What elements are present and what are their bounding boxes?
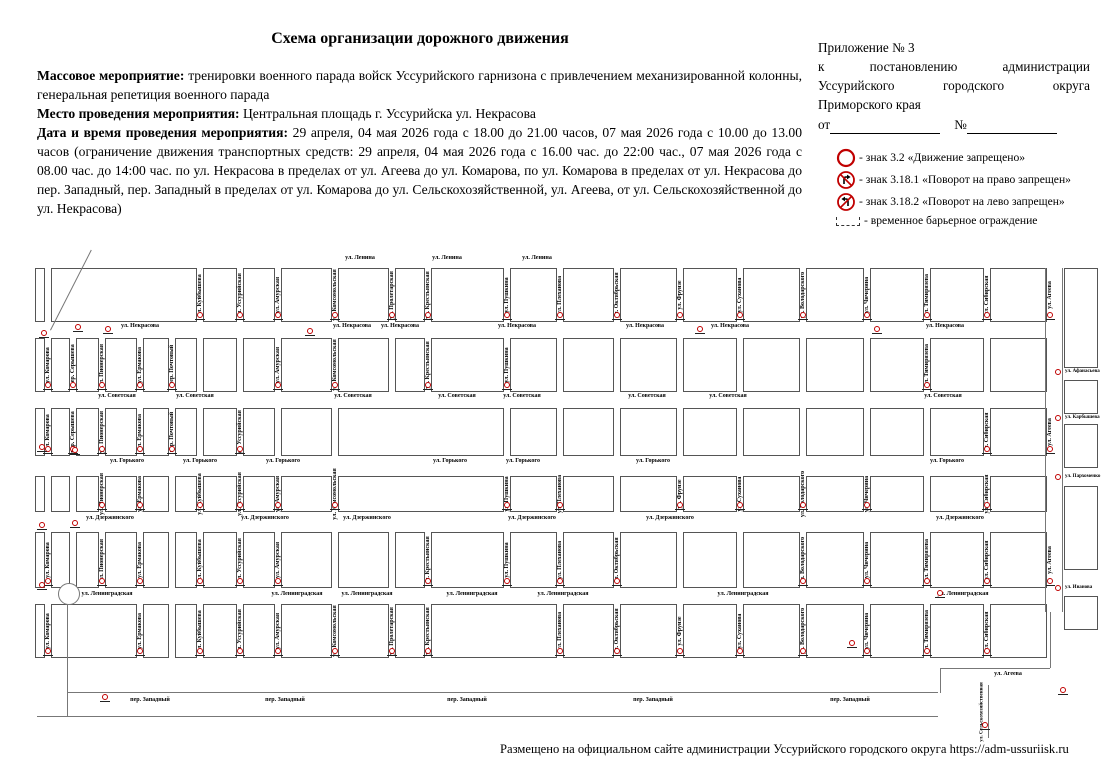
city-block bbox=[563, 604, 614, 658]
barrier-mark bbox=[68, 389, 78, 390]
street-label-vertical: ул. Комсомольская bbox=[332, 468, 338, 520]
no-entry-sign bbox=[737, 648, 743, 654]
no-entry-sign bbox=[237, 446, 243, 452]
street-label-vertical: ул. Крестьянская bbox=[425, 536, 431, 583]
no-entry-sign bbox=[737, 312, 743, 318]
street-label-horizontal: ул. Советская bbox=[628, 393, 666, 399]
city-block bbox=[35, 476, 45, 512]
barrier-mark bbox=[675, 655, 685, 656]
street-line bbox=[67, 600, 68, 716]
street-label-vertical: ул. Уссурийская bbox=[237, 273, 243, 317]
no-entry-sign bbox=[72, 520, 78, 526]
barrier-mark bbox=[39, 337, 49, 338]
barrier-mark bbox=[97, 389, 107, 390]
city-block bbox=[51, 338, 70, 392]
no-entry-sign bbox=[984, 502, 990, 508]
city-block bbox=[143, 476, 169, 512]
city-block bbox=[930, 604, 984, 658]
city-block bbox=[990, 268, 1047, 322]
city-block bbox=[175, 476, 197, 512]
no-entry-sign bbox=[864, 312, 870, 318]
barrier-mark bbox=[612, 655, 622, 656]
no-entry-sign bbox=[39, 582, 45, 588]
street-label-vertical: ул. Ермакова bbox=[137, 613, 143, 649]
city-block bbox=[431, 604, 557, 658]
no-entry-sign bbox=[237, 502, 243, 508]
city-block bbox=[683, 408, 737, 456]
barrier-mark bbox=[922, 389, 932, 390]
street-label-horizontal: ул. Ленинградская bbox=[717, 591, 768, 597]
no-entry-sign bbox=[937, 590, 943, 596]
city-block bbox=[51, 408, 70, 456]
street-label-free: ул. Сельскохозяйственная bbox=[980, 682, 985, 741]
no-entry-sign bbox=[924, 312, 930, 318]
street-label-vertical: ул. Пионерская bbox=[99, 539, 105, 581]
barrier-mark bbox=[135, 655, 145, 656]
barrier-mark bbox=[135, 585, 145, 586]
barrier-mark bbox=[872, 333, 882, 334]
street-label-horizontal: ул. Некрасова bbox=[711, 323, 749, 329]
city-block bbox=[143, 408, 169, 456]
city-block bbox=[806, 476, 864, 512]
city-block bbox=[76, 338, 99, 392]
no-entry-sign bbox=[237, 648, 243, 654]
street-label-vertical: ул. Тимирязева bbox=[924, 539, 930, 581]
street-label-horizontal: ул. Некрасова bbox=[626, 323, 664, 329]
barrier-mark bbox=[982, 319, 992, 320]
city-block bbox=[395, 268, 425, 322]
city-block bbox=[1064, 424, 1098, 468]
street-label-vertical: ул. Сибирская bbox=[984, 611, 990, 650]
barrier-mark bbox=[862, 655, 872, 656]
street-label-horizontal: ул. Ленина bbox=[432, 255, 462, 261]
no-entry-sign bbox=[332, 312, 338, 318]
city-block bbox=[806, 338, 864, 392]
street-label-horizontal: ул. Дзержинского bbox=[646, 515, 694, 521]
no-entry-sign bbox=[72, 447, 78, 453]
street-label-horizontal: ул. Горького bbox=[183, 458, 217, 464]
no-entry-sign bbox=[45, 578, 51, 584]
city-block bbox=[203, 338, 237, 392]
city-block bbox=[683, 604, 737, 658]
street-label-horizontal: ул. Некрасова bbox=[926, 323, 964, 329]
street-label-horizontal: ул. Ленинградская bbox=[271, 591, 322, 597]
street-label-vertical: ул. Комарова bbox=[45, 414, 51, 450]
street-label-horizontal: пер. Западный bbox=[447, 697, 487, 703]
no-entry-sign bbox=[425, 578, 431, 584]
no-entry-sign bbox=[169, 446, 175, 452]
no-entry-sign bbox=[99, 578, 105, 584]
city-block bbox=[806, 408, 864, 456]
city-block bbox=[76, 532, 99, 588]
no-entry-sign bbox=[332, 648, 338, 654]
no-entry-sign bbox=[1055, 585, 1061, 591]
street-label-horizontal: ул. Советская bbox=[334, 393, 372, 399]
city-block bbox=[35, 268, 45, 322]
barrier-mark bbox=[862, 319, 872, 320]
barrier-mark bbox=[612, 319, 622, 320]
street-label-vertical: ул. Пушкина bbox=[504, 277, 510, 312]
city-block bbox=[743, 268, 800, 322]
city-block bbox=[281, 268, 332, 322]
city-block bbox=[563, 338, 614, 392]
city-block bbox=[683, 268, 737, 322]
city-block bbox=[175, 532, 197, 588]
street-label-vertical: ул. Комарова bbox=[45, 613, 51, 649]
barrier-mark bbox=[43, 389, 53, 390]
no-entry-sign bbox=[45, 382, 51, 388]
no-entry-sign bbox=[677, 648, 683, 654]
city-block bbox=[35, 604, 45, 658]
city-block bbox=[143, 338, 169, 392]
street-label-horizontal: ул. Афанасьева bbox=[1065, 369, 1100, 374]
street-label-vertical: ул. Амурская bbox=[275, 542, 281, 578]
barrier-mark bbox=[502, 389, 512, 390]
street-label-horizontal: ул. Горького bbox=[266, 458, 300, 464]
no-entry-sign bbox=[99, 382, 105, 388]
barrier-mark bbox=[935, 597, 945, 598]
no-entry-sign bbox=[1047, 578, 1053, 584]
street-label-vertical: ул. Тимирязева bbox=[924, 274, 930, 316]
no-entry-sign bbox=[800, 312, 806, 318]
street-label-vertical: ул. Тимирязева bbox=[924, 344, 930, 386]
street-label-horizontal: ул. Ленинградская bbox=[81, 591, 132, 597]
street-line bbox=[1045, 268, 1046, 612]
barrier-mark bbox=[555, 319, 565, 320]
street-label-horizontal: ул. Горького bbox=[110, 458, 144, 464]
no-entry-sign bbox=[307, 328, 313, 334]
street-label-vertical: ул. Пушкина bbox=[504, 347, 510, 382]
no-entry-sign bbox=[99, 502, 105, 508]
barrier-mark bbox=[612, 585, 622, 586]
street-label-vertical: ул. Амурская bbox=[275, 613, 281, 649]
city-block bbox=[395, 338, 425, 392]
street-label-vertical: ул. Ермакова bbox=[137, 542, 143, 578]
no-entry-sign bbox=[1055, 369, 1061, 375]
street-label-vertical: ул. Фрунзе bbox=[677, 616, 683, 645]
city-block bbox=[806, 268, 864, 322]
no-entry-sign bbox=[984, 578, 990, 584]
no-entry-sign bbox=[237, 578, 243, 584]
city-block bbox=[51, 476, 70, 512]
barrier-mark bbox=[235, 319, 245, 320]
barrier-mark bbox=[235, 655, 245, 656]
no-entry-sign bbox=[39, 444, 45, 450]
street-label-vertical: ул. Сибирская bbox=[984, 540, 990, 579]
no-entry-sign bbox=[864, 648, 870, 654]
city-block bbox=[620, 338, 677, 392]
street-label-vertical: ул. Октябрьская bbox=[614, 537, 620, 582]
street-label-vertical: ул. Чичерина bbox=[864, 277, 870, 313]
street-label-vertical: ул. Плеханова bbox=[557, 612, 563, 650]
street-label-horizontal: пер. Западный bbox=[130, 697, 170, 703]
footer-note: Размещено на официальном сайте администр… bbox=[500, 742, 1069, 757]
city-block bbox=[243, 268, 275, 322]
barrier-mark bbox=[982, 655, 992, 656]
city-block bbox=[870, 338, 924, 392]
street-label-vertical: ул. Агеева bbox=[1047, 418, 1053, 446]
street-label-horizontal: ул. Горького bbox=[636, 458, 670, 464]
barrier-mark bbox=[423, 655, 433, 656]
city-block bbox=[990, 476, 1047, 512]
city-block bbox=[930, 268, 984, 322]
city-block bbox=[243, 476, 275, 512]
street-label-vertical: ул. Агеева bbox=[1047, 281, 1053, 309]
no-entry-sign bbox=[504, 382, 510, 388]
city-block bbox=[743, 532, 800, 588]
no-entry-sign bbox=[984, 446, 990, 452]
city-block bbox=[743, 338, 800, 392]
no-entry-sign bbox=[557, 578, 563, 584]
city-block bbox=[683, 532, 737, 588]
no-entry-sign bbox=[982, 722, 988, 728]
barrier-mark bbox=[167, 389, 177, 390]
city-block bbox=[76, 408, 99, 456]
city-block bbox=[338, 408, 504, 456]
street-label-horizontal: ул. Ленинградская bbox=[341, 591, 392, 597]
street-label-vertical: ул. Фрунзе bbox=[677, 280, 683, 309]
barrier-mark bbox=[502, 585, 512, 586]
city-block bbox=[243, 408, 275, 456]
no-entry-sign bbox=[677, 312, 683, 318]
street-label-vertical: ул. Пушкина bbox=[504, 542, 510, 577]
barrier-mark bbox=[37, 451, 47, 452]
street-label-horizontal: ул. Ленина bbox=[345, 255, 375, 261]
street-label-horizontal: ул. Дзержинского bbox=[241, 515, 289, 521]
street-label-vertical: ул. Амурская bbox=[275, 347, 281, 383]
city-block bbox=[143, 532, 169, 588]
city-block bbox=[620, 268, 677, 322]
no-entry-sign bbox=[389, 648, 395, 654]
street-label-horizontal: ул. Ленинградская bbox=[937, 591, 988, 597]
barrier-mark bbox=[103, 333, 113, 334]
city-block bbox=[203, 408, 237, 456]
no-entry-sign bbox=[275, 312, 281, 318]
street-label-vertical: ул. Володарского bbox=[800, 537, 806, 583]
barrier-mark bbox=[735, 319, 745, 320]
barrier-mark bbox=[982, 509, 992, 510]
barrier-mark bbox=[97, 585, 107, 586]
no-entry-sign bbox=[169, 382, 175, 388]
city-block bbox=[510, 476, 557, 512]
barrier-mark bbox=[43, 655, 53, 656]
city-block bbox=[105, 476, 137, 512]
city-block bbox=[203, 532, 237, 588]
street-label-vertical: ул. Амурская bbox=[275, 277, 281, 313]
street-label-vertical: ул. Куйбышева bbox=[197, 539, 203, 581]
barrier-mark bbox=[195, 585, 205, 586]
no-entry-sign bbox=[614, 578, 620, 584]
no-entry-sign bbox=[504, 312, 510, 318]
barrier-mark bbox=[555, 655, 565, 656]
barrier-mark bbox=[735, 655, 745, 656]
barrier-mark bbox=[235, 453, 245, 454]
street-label-vertical: ул. Плеханова bbox=[557, 276, 563, 314]
no-entry-sign bbox=[197, 578, 203, 584]
street-label-vertical: ул. Тимирязева bbox=[924, 610, 930, 652]
street-label-horizontal: пер. Западный bbox=[830, 697, 870, 703]
barrier-mark bbox=[922, 585, 932, 586]
no-entry-sign bbox=[197, 312, 203, 318]
city-block bbox=[203, 604, 237, 658]
city-block bbox=[431, 338, 504, 392]
city-block bbox=[563, 532, 614, 588]
barrier-mark bbox=[43, 453, 53, 454]
city-block bbox=[35, 532, 45, 588]
city-block bbox=[395, 532, 425, 588]
street-label-horizontal: ул. Ленинградская bbox=[446, 591, 497, 597]
no-entry-sign bbox=[137, 502, 143, 508]
city-block bbox=[806, 604, 864, 658]
street-label-vertical: ул. Уссурийская bbox=[237, 609, 243, 653]
street-label-horizontal: ул. Дзержинского bbox=[343, 515, 391, 521]
barrier-mark bbox=[922, 655, 932, 656]
no-entry-sign bbox=[275, 382, 281, 388]
street-label-horizontal: ул. Ленинградская bbox=[537, 591, 588, 597]
barrier-mark bbox=[502, 509, 512, 510]
city-block bbox=[51, 604, 137, 658]
no-entry-sign bbox=[39, 522, 45, 528]
barrier-mark bbox=[97, 509, 107, 510]
street-label-horizontal: ул. Некрасова bbox=[121, 323, 159, 329]
city-block bbox=[620, 408, 677, 456]
city-block bbox=[870, 408, 924, 456]
no-entry-sign bbox=[504, 578, 510, 584]
city-block bbox=[870, 476, 924, 512]
city-block bbox=[620, 476, 677, 512]
street-line bbox=[1050, 612, 1051, 668]
city-block bbox=[338, 338, 389, 392]
city-block bbox=[175, 408, 197, 456]
no-entry-sign bbox=[75, 324, 81, 330]
barrier-mark bbox=[135, 453, 145, 454]
street-label-horizontal: ул. Некрасова bbox=[381, 323, 419, 329]
city-block bbox=[281, 476, 332, 512]
city-block bbox=[683, 476, 737, 512]
city-block bbox=[105, 532, 137, 588]
barrier-mark bbox=[37, 589, 47, 590]
street-label-vertical: ул. Куйбышева bbox=[197, 274, 203, 316]
street-label-vertical: ул. Суханова bbox=[737, 614, 743, 649]
barrier-mark bbox=[330, 319, 340, 320]
city-block bbox=[870, 532, 924, 588]
no-entry-sign bbox=[137, 382, 143, 388]
city-block bbox=[1064, 486, 1098, 570]
no-entry-sign bbox=[137, 648, 143, 654]
barrier-mark bbox=[862, 585, 872, 586]
barrier-mark bbox=[735, 509, 745, 510]
street-label-vertical: пер. Серышева bbox=[70, 344, 76, 386]
barrier-mark bbox=[273, 509, 283, 510]
barrier-mark bbox=[423, 585, 433, 586]
street-label-horizontal: ул. Пархоменко bbox=[1065, 474, 1100, 479]
no-entry-sign bbox=[275, 502, 281, 508]
no-entry-sign bbox=[102, 694, 108, 700]
no-entry-sign bbox=[1060, 687, 1066, 693]
no-entry-sign bbox=[677, 502, 683, 508]
city-block bbox=[281, 408, 332, 456]
no-entry-sign bbox=[237, 312, 243, 318]
roundabout bbox=[58, 583, 80, 605]
city-block bbox=[175, 604, 197, 658]
street-label-vertical: ул. Ермакова bbox=[137, 347, 143, 383]
city-block bbox=[620, 604, 677, 658]
barrier-mark bbox=[273, 389, 283, 390]
street-label-vertical: ул. Агеева bbox=[1047, 546, 1053, 574]
city-block bbox=[51, 532, 70, 588]
city-block bbox=[990, 338, 1047, 392]
no-entry-sign bbox=[504, 502, 510, 508]
city-block bbox=[510, 532, 557, 588]
no-entry-sign bbox=[614, 648, 620, 654]
city-block bbox=[243, 604, 275, 658]
city-block bbox=[930, 408, 984, 456]
no-entry-sign bbox=[1047, 446, 1053, 452]
street-label-horizontal: ул. Дзержинского bbox=[86, 515, 134, 521]
no-entry-sign bbox=[389, 312, 395, 318]
street-label-vertical: ул. Плеханова bbox=[557, 541, 563, 579]
street-label-horizontal: ул. Дзержинского bbox=[508, 515, 556, 521]
no-entry-sign bbox=[864, 502, 870, 508]
city-block bbox=[203, 476, 237, 512]
barrier-mark bbox=[387, 319, 397, 320]
street-label-horizontal: ул. Советская bbox=[438, 393, 476, 399]
city-block bbox=[281, 338, 332, 392]
street-label-horizontal: ул. Некрасова bbox=[498, 323, 536, 329]
city-block bbox=[563, 476, 614, 512]
barrier-mark bbox=[798, 319, 808, 320]
city-block bbox=[1064, 596, 1098, 630]
barrier-mark bbox=[847, 647, 857, 648]
city-block bbox=[563, 268, 614, 322]
barrier-mark bbox=[502, 319, 512, 320]
barrier-mark bbox=[980, 729, 990, 730]
barrier-mark bbox=[1045, 453, 1055, 454]
no-entry-sign bbox=[924, 648, 930, 654]
no-entry-sign bbox=[137, 446, 143, 452]
no-entry-sign bbox=[275, 578, 281, 584]
barrier-mark bbox=[135, 389, 145, 390]
no-entry-sign bbox=[105, 326, 111, 332]
city-block bbox=[563, 408, 614, 456]
no-entry-sign bbox=[924, 382, 930, 388]
no-entry-sign bbox=[614, 312, 620, 318]
no-entry-sign bbox=[557, 502, 563, 508]
street-label-horizontal: ул. Карбышева bbox=[1065, 415, 1100, 420]
no-entry-sign bbox=[874, 326, 880, 332]
street-label-vertical: ул. Комарова bbox=[45, 542, 51, 578]
barrier-mark bbox=[195, 655, 205, 656]
no-entry-sign bbox=[924, 578, 930, 584]
no-entry-sign bbox=[984, 312, 990, 318]
city-block bbox=[930, 338, 984, 392]
barrier-mark bbox=[982, 453, 992, 454]
barrier-mark bbox=[423, 319, 433, 320]
barrier-mark bbox=[195, 509, 205, 510]
street-label-horizontal: ул. Дзержинского bbox=[936, 515, 984, 521]
street-label-vertical: ул. Куйбышева bbox=[197, 610, 203, 652]
city-block bbox=[1064, 380, 1098, 414]
street-label-vertical: ул. Октябрьская bbox=[614, 608, 620, 653]
city-block bbox=[510, 268, 557, 322]
city-block bbox=[431, 532, 504, 588]
street-label-horizontal: ул. Советская bbox=[176, 393, 214, 399]
street-label-horizontal: пер. Западный bbox=[633, 697, 673, 703]
city-block bbox=[930, 532, 984, 588]
street-line bbox=[988, 685, 989, 738]
city-block bbox=[510, 338, 557, 392]
barrier-mark bbox=[167, 453, 177, 454]
